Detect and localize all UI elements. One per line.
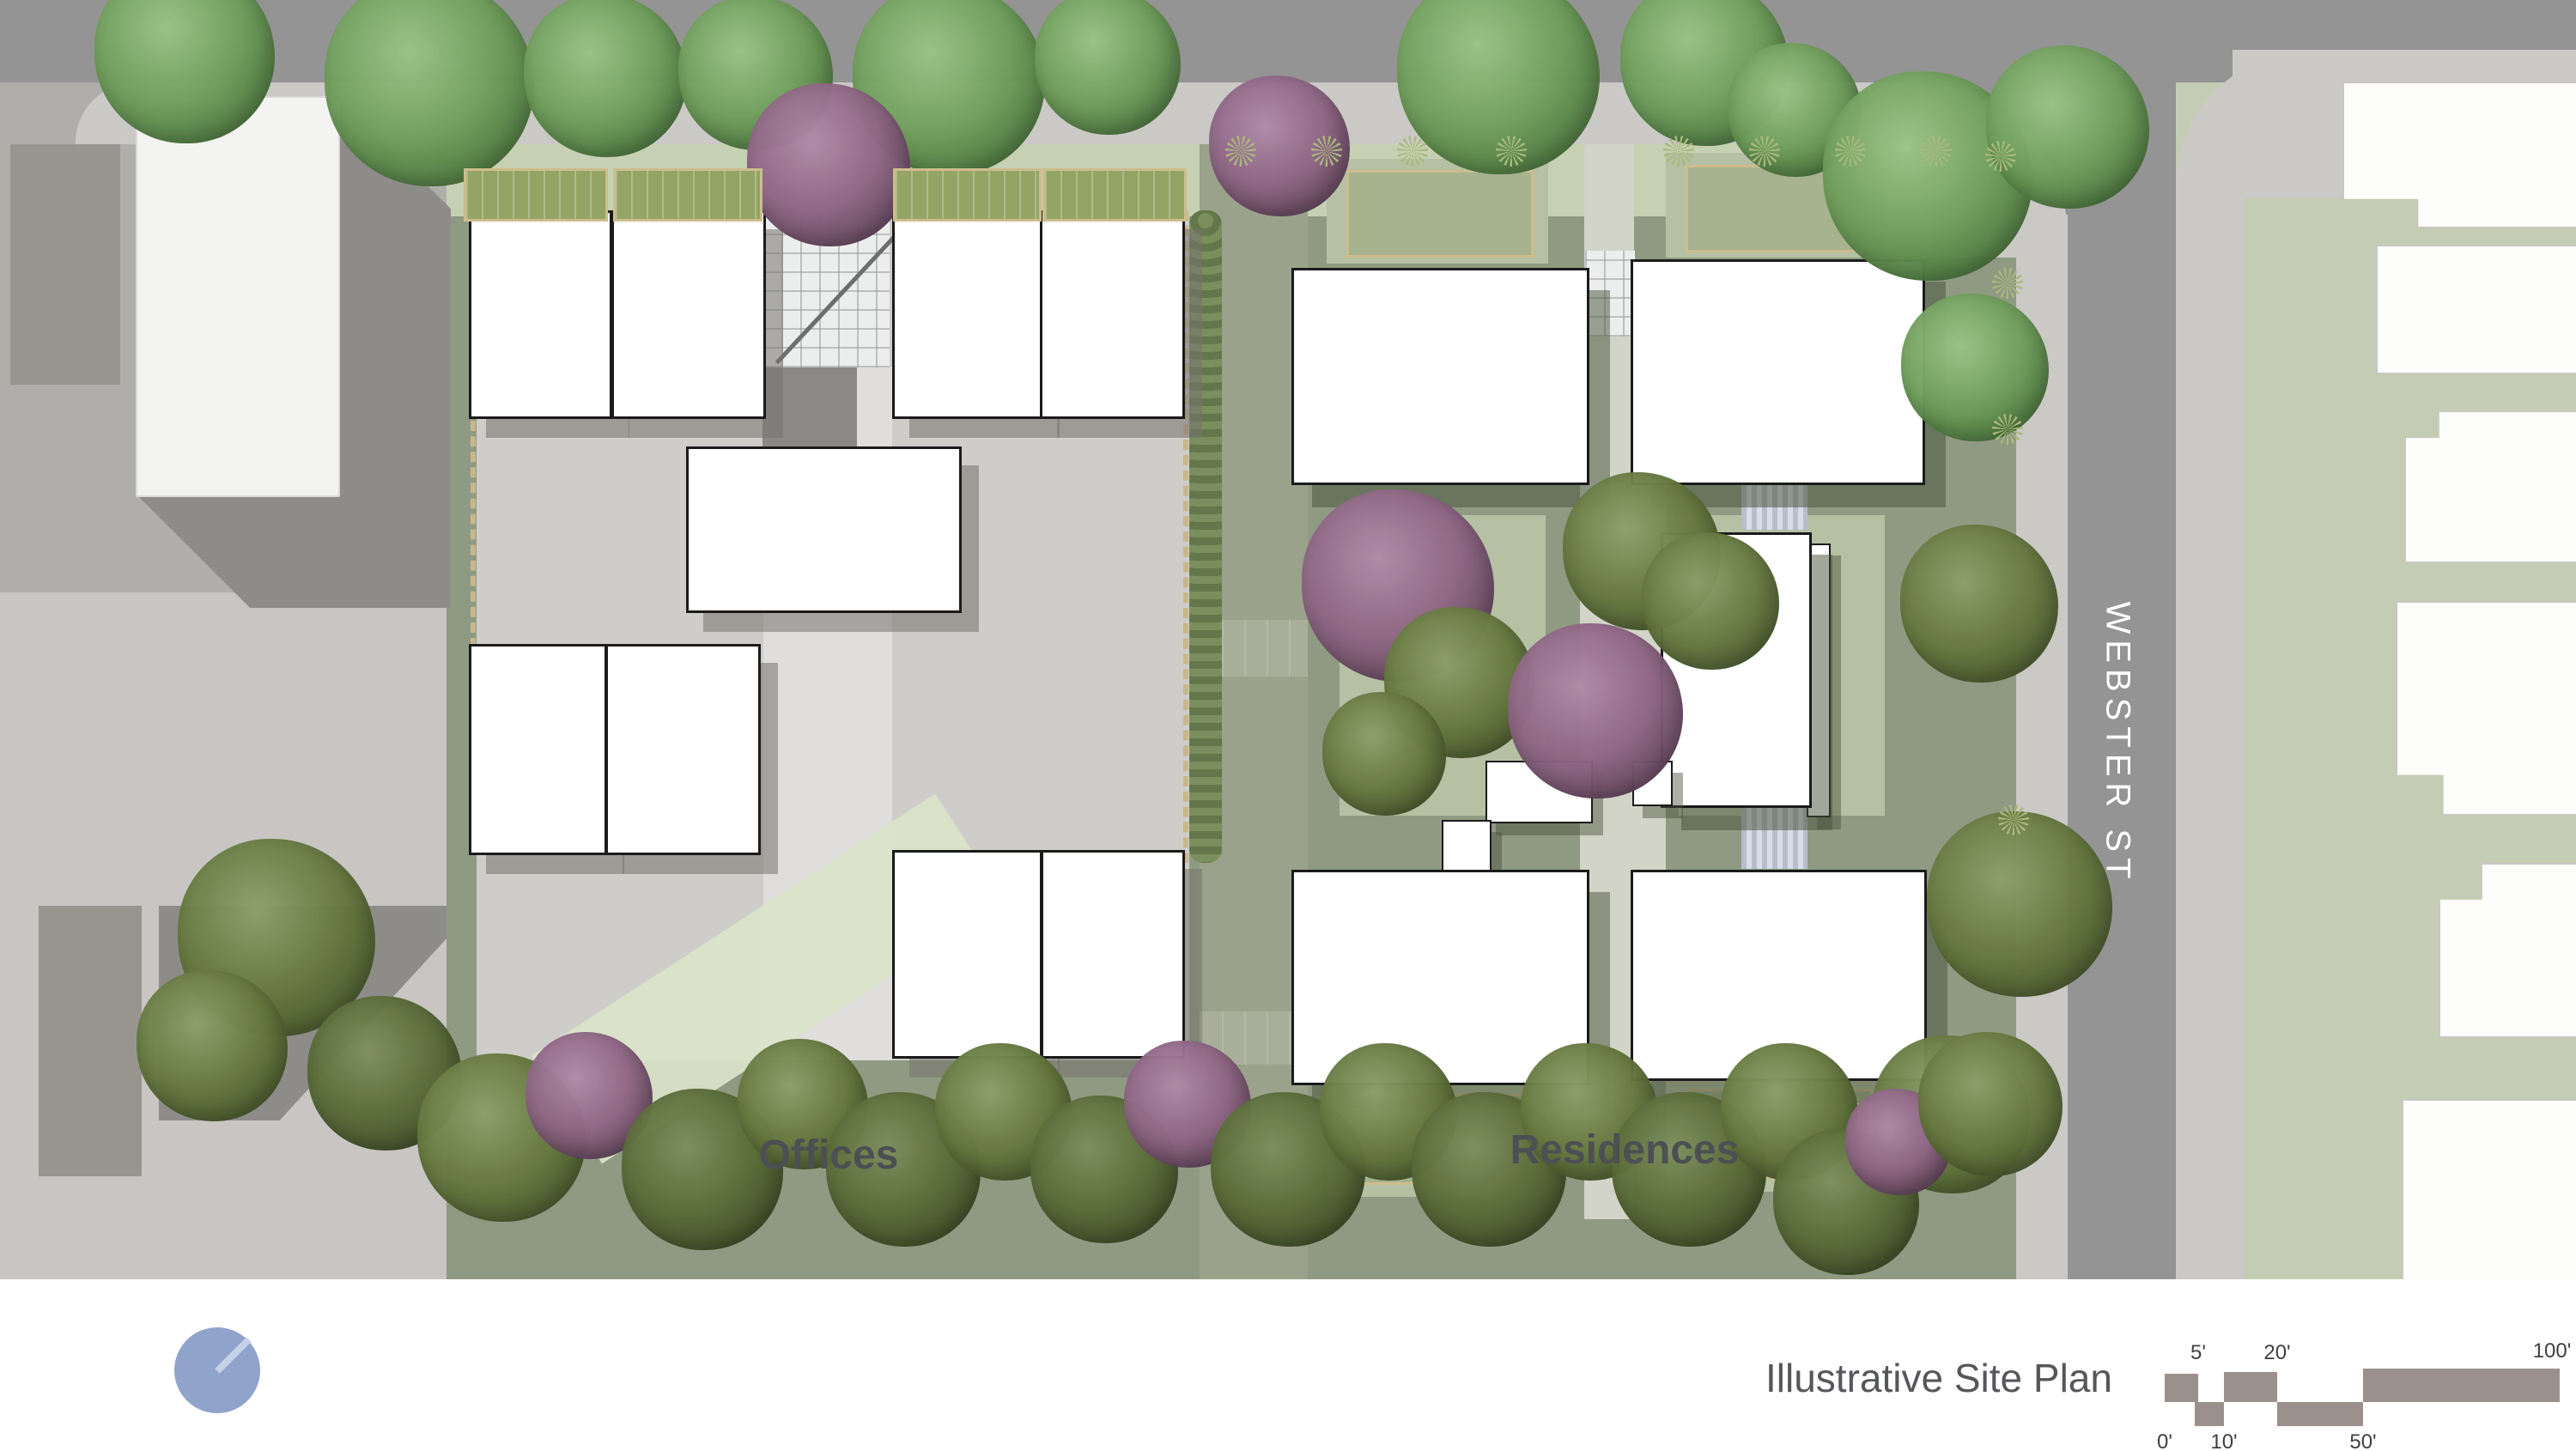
office-entry-vestibule xyxy=(762,367,857,452)
yard-planter-frame xyxy=(1686,165,1873,252)
west-dark-building xyxy=(39,906,142,1176)
illustrative-site-plan-page: Offices Residences WEBSTER ST Illustrati… xyxy=(0,0,2576,1451)
residence-building-southwest xyxy=(1291,870,1589,1085)
scale-tick-20: 20' xyxy=(2263,1341,2290,1365)
residence-building-center xyxy=(1661,532,1812,808)
scale-bar-segment xyxy=(2195,1402,2224,1426)
offices-label: Offices xyxy=(759,1132,899,1179)
paseo-hedge xyxy=(1189,210,1222,863)
office-building xyxy=(892,210,1042,419)
yard-planter-frame xyxy=(1346,170,1534,258)
residence-bridge-unit xyxy=(1442,820,1492,873)
scale-bar-segment xyxy=(2224,1372,2277,1402)
office-building xyxy=(469,644,607,855)
yard-planter-frame xyxy=(1346,1094,1534,1185)
east-neighbor-building xyxy=(2402,1099,2576,1279)
scale-tick-0: 0' xyxy=(2157,1430,2172,1451)
residence-center-court xyxy=(1580,481,1666,871)
residence-building-northwest xyxy=(1291,268,1589,485)
office-building xyxy=(892,850,1042,1059)
site-plan: Offices Residences WEBSTER ST xyxy=(0,0,2576,1279)
office-entry-canopy xyxy=(762,216,890,367)
office-building-center xyxy=(686,446,962,613)
residence-bridge-unit xyxy=(1632,761,1673,806)
office-building xyxy=(1041,850,1185,1059)
office-building xyxy=(1040,210,1185,419)
page-title: Illustrative Site Plan xyxy=(1765,1355,2112,1401)
scale-tick-5: 5' xyxy=(2190,1341,2206,1365)
webster-east-sidewalk xyxy=(2176,172,2245,1279)
north-arrow-icon xyxy=(174,1327,260,1413)
webster-west-sidewalk xyxy=(2016,215,2068,1279)
north-arrow-needle xyxy=(215,1337,251,1373)
webster-street-label: WEBSTER ST xyxy=(2099,563,2137,924)
scale-bar-segment xyxy=(2277,1402,2363,1426)
glass-bridge-south xyxy=(1741,801,1807,869)
scale-bar-segment xyxy=(2363,1369,2560,1402)
scale-tick-50: 50' xyxy=(2349,1430,2376,1451)
residence-bridge-unit xyxy=(1485,761,1593,823)
scale-tick-100: 100' xyxy=(2533,1339,2572,1363)
residence-building-northeast xyxy=(1631,259,1925,485)
scale-tick-10: 10' xyxy=(2210,1430,2237,1451)
residence-entry-canopy xyxy=(1585,251,1635,337)
west-neighbor-building xyxy=(136,96,340,497)
office-building xyxy=(469,210,612,419)
residence-building-southeast xyxy=(1631,870,1927,1081)
residences-label: Residences xyxy=(1510,1126,1740,1174)
east-neighbor-building xyxy=(2376,245,2576,374)
office-building xyxy=(605,644,761,855)
office-planting-strip xyxy=(447,144,1200,216)
scale-bar-segment xyxy=(2165,1374,2198,1402)
north-street xyxy=(0,0,2576,82)
office-building xyxy=(611,210,766,419)
west-dark-building xyxy=(10,144,120,385)
